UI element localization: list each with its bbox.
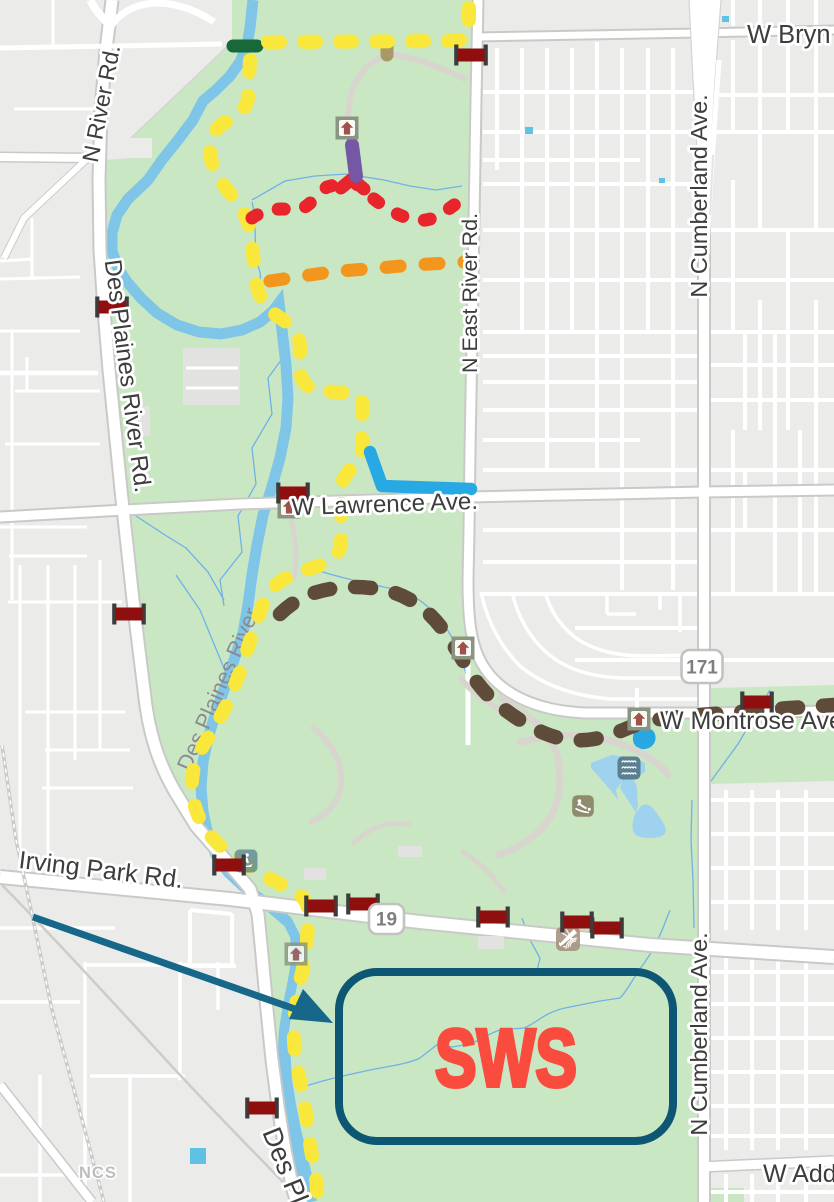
svg-text:19: 19: [376, 910, 397, 931]
svg-text:W Bryn: W Bryn: [747, 21, 831, 49]
svg-text:NCS: NCS: [79, 1164, 117, 1182]
svg-text:N East River Rd.: N East River Rd.: [458, 213, 482, 373]
svg-text:W Addis: W Addis: [763, 1160, 834, 1188]
svg-text:SWS: SWS: [435, 1013, 577, 1104]
svg-text:N Cumberland Ave.: N Cumberland Ave.: [686, 932, 712, 1135]
svg-text:N Cumberland Ave.: N Cumberland Ave.: [686, 94, 712, 297]
svg-text:171: 171: [686, 658, 718, 679]
svg-text:W Montrose Ave: W Montrose Ave: [660, 707, 834, 735]
